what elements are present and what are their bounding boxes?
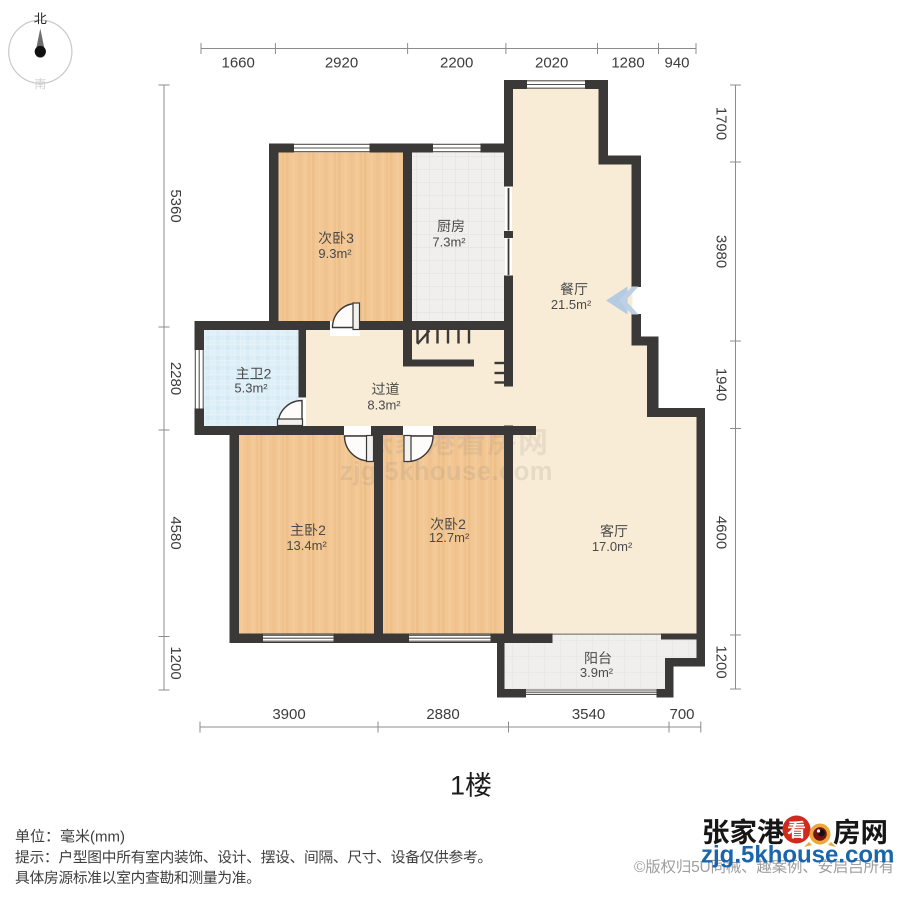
svg-text:9.3m²: 9.3m² xyxy=(318,246,352,261)
svg-text:700: 700 xyxy=(669,706,694,723)
svg-text:2: 2 xyxy=(318,522,326,538)
svg-text:3: 3 xyxy=(346,230,354,246)
svg-text:12.7m²: 12.7m² xyxy=(429,530,470,545)
svg-text:1660: 1660 xyxy=(222,54,255,71)
svg-text:1: 1 xyxy=(450,771,465,801)
svg-text:13.4m²: 13.4m² xyxy=(286,538,327,553)
svg-text:1940: 1940 xyxy=(713,368,730,401)
svg-text:zjg.5khouse.com: zjg.5khouse.com xyxy=(701,842,894,869)
svg-text:3.9m²: 3.9m² xyxy=(580,665,614,680)
svg-text:1700: 1700 xyxy=(713,107,730,140)
svg-text:(mm): (mm) xyxy=(90,828,125,845)
svg-text:2020: 2020 xyxy=(535,54,568,71)
svg-text:4580: 4580 xyxy=(167,516,184,549)
svg-text:2880: 2880 xyxy=(426,706,459,723)
svg-text:8.3m²: 8.3m² xyxy=(367,398,401,413)
svg-text:1200: 1200 xyxy=(167,646,184,679)
svg-text:3540: 3540 xyxy=(572,706,605,723)
svg-text:2200: 2200 xyxy=(440,54,473,71)
svg-text:17.0m²: 17.0m² xyxy=(592,539,633,554)
svg-text:5360: 5360 xyxy=(167,189,184,222)
svg-text:3980: 3980 xyxy=(713,235,730,268)
svg-text:4600: 4600 xyxy=(713,516,730,549)
svg-text:21.5m²: 21.5m² xyxy=(551,297,592,312)
svg-text:1200: 1200 xyxy=(713,645,730,678)
svg-text:7.3m²: 7.3m² xyxy=(432,235,466,250)
svg-text:3900: 3900 xyxy=(272,706,305,723)
svg-text:940: 940 xyxy=(664,54,689,71)
svg-text:5.3m²: 5.3m² xyxy=(234,381,268,396)
svg-text:1280: 1280 xyxy=(611,54,644,71)
svg-text:2920: 2920 xyxy=(325,54,358,71)
svg-text:©: © xyxy=(634,859,646,876)
svg-text:2: 2 xyxy=(264,366,272,382)
svg-text:2280: 2280 xyxy=(167,362,184,395)
svg-text:zjg.5khouse.com: zjg.5khouse.com xyxy=(340,458,553,486)
